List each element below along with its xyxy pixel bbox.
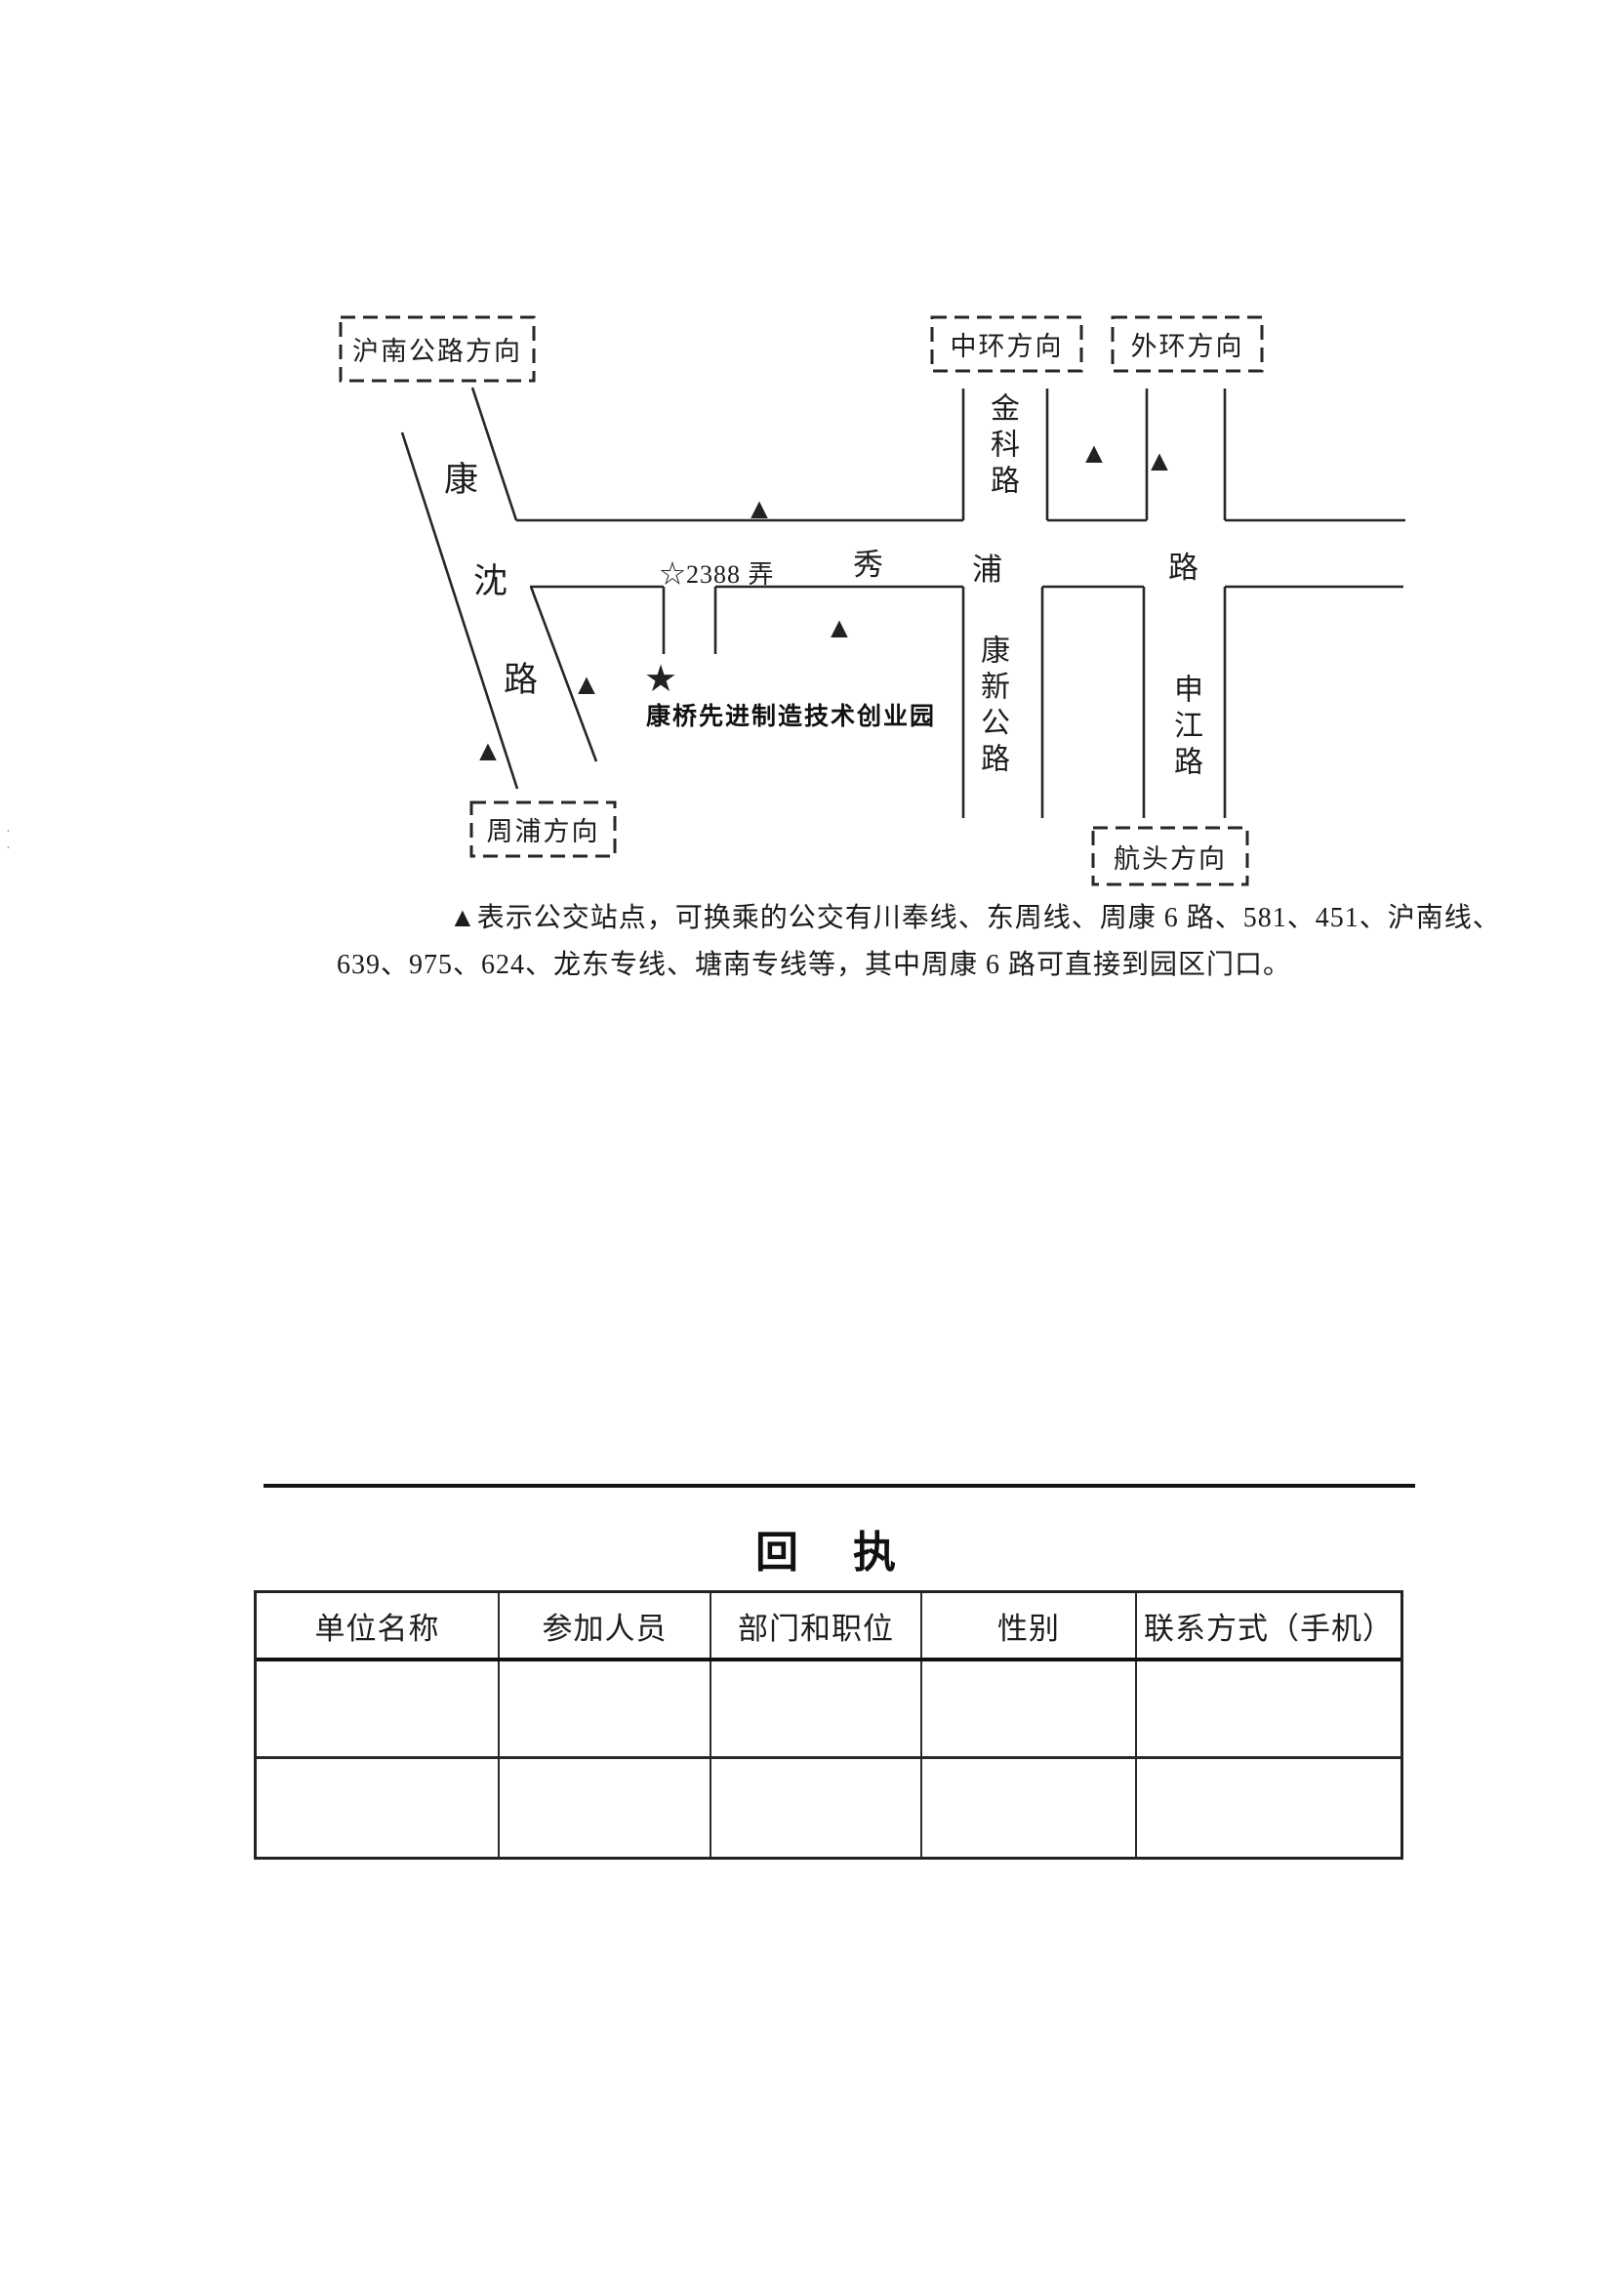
entrance-2388-label: ☆2388 弄 xyxy=(660,554,775,591)
bus-stop-icon: ▲ xyxy=(745,493,774,525)
kangshen-road-char-2: 沈 xyxy=(473,553,507,603)
waihuan-direction-label: 外环方向 xyxy=(1113,317,1262,371)
xiupu-road-char-3: 路 xyxy=(1168,543,1198,587)
table-cell xyxy=(920,1759,1135,1857)
table-cell xyxy=(498,1661,710,1756)
table-cell xyxy=(257,1661,498,1756)
table-cell xyxy=(920,1661,1135,1756)
reply-form-title: 回 执 xyxy=(254,1517,1403,1579)
bus-stop-icon: ▲ xyxy=(572,669,601,701)
bus-stop-icon: ▲ xyxy=(1145,445,1174,477)
table-cell xyxy=(1135,1661,1401,1756)
zhonghuan-direction-label: 中环方向 xyxy=(932,317,1081,371)
kangxin-road-label: 康新公路 xyxy=(970,635,1013,779)
park-name-label: 康桥先进制造技术创业园 xyxy=(646,697,936,732)
table-cell xyxy=(257,1759,498,1857)
bus-stop-icon: ▲ xyxy=(473,735,503,767)
bus-stop-icon: ▲ xyxy=(825,612,854,644)
table-header-participants: 参加人员 xyxy=(498,1593,710,1658)
location-map: ▲ ▲ ▲ ▲ ▲ ▲ ★ xyxy=(0,0,1624,2296)
scanned-document-page: ▲ ▲ ▲ ▲ ▲ ▲ ★ 沪南公路方向 中环方向 外环方向 周浦方向 航头方向… xyxy=(0,0,1624,2296)
reply-table-empty-row xyxy=(257,1661,1401,1759)
table-header-unit-name: 单位名称 xyxy=(257,1593,498,1658)
table-cell xyxy=(1135,1759,1401,1857)
kangshen-road-right-upper-line xyxy=(472,388,516,520)
table-header-gender: 性别 xyxy=(920,1593,1135,1658)
kangshen-road-char-1: 康 xyxy=(444,452,478,502)
zhoupu-direction-label: 周浦方向 xyxy=(471,802,615,856)
table-header-dept-position: 部门和职位 xyxy=(710,1593,920,1658)
scan-artifact: ·· xyxy=(6,824,11,857)
xiupu-road-char-2: 浦 xyxy=(972,545,1002,589)
reply-table-header-row: 单位名称 参加人员 部门和职位 性别 联系方式（手机） xyxy=(257,1593,1401,1661)
reply-table: 单位名称 参加人员 部门和职位 性别 联系方式（手机） xyxy=(254,1590,1403,1860)
legend-line-1: ▲表示公交站点，可换乘的公交有川奉线、东周线、周康 6 路、581、451、沪南… xyxy=(449,896,1501,935)
road-lines xyxy=(402,388,1405,818)
section-separator-line xyxy=(264,1484,1415,1488)
kangshen-road-char-3: 路 xyxy=(504,652,538,702)
bus-stop-icon: ▲ xyxy=(1079,437,1109,470)
xiupu-road-char-1: 秀 xyxy=(853,540,883,584)
table-cell xyxy=(498,1759,710,1857)
park-star-icon: ★ xyxy=(644,659,677,700)
hangtou-direction-label: 航头方向 xyxy=(1093,828,1247,884)
table-cell xyxy=(710,1661,920,1756)
table-header-contact: 联系方式（手机） xyxy=(1135,1593,1401,1658)
reply-table-empty-row xyxy=(257,1759,1401,1857)
jinke-road-label: 金科路 xyxy=(980,392,1023,501)
hunan-highway-direction-label: 沪南公路方向 xyxy=(341,317,534,381)
table-cell xyxy=(710,1759,920,1857)
legend-line-2: 639、975、624、龙东专线、塘南专线等，其中周康 6 路可直接到园区门口。 xyxy=(337,943,1291,982)
shenjiang-road-label: 申江路 xyxy=(1163,674,1206,782)
